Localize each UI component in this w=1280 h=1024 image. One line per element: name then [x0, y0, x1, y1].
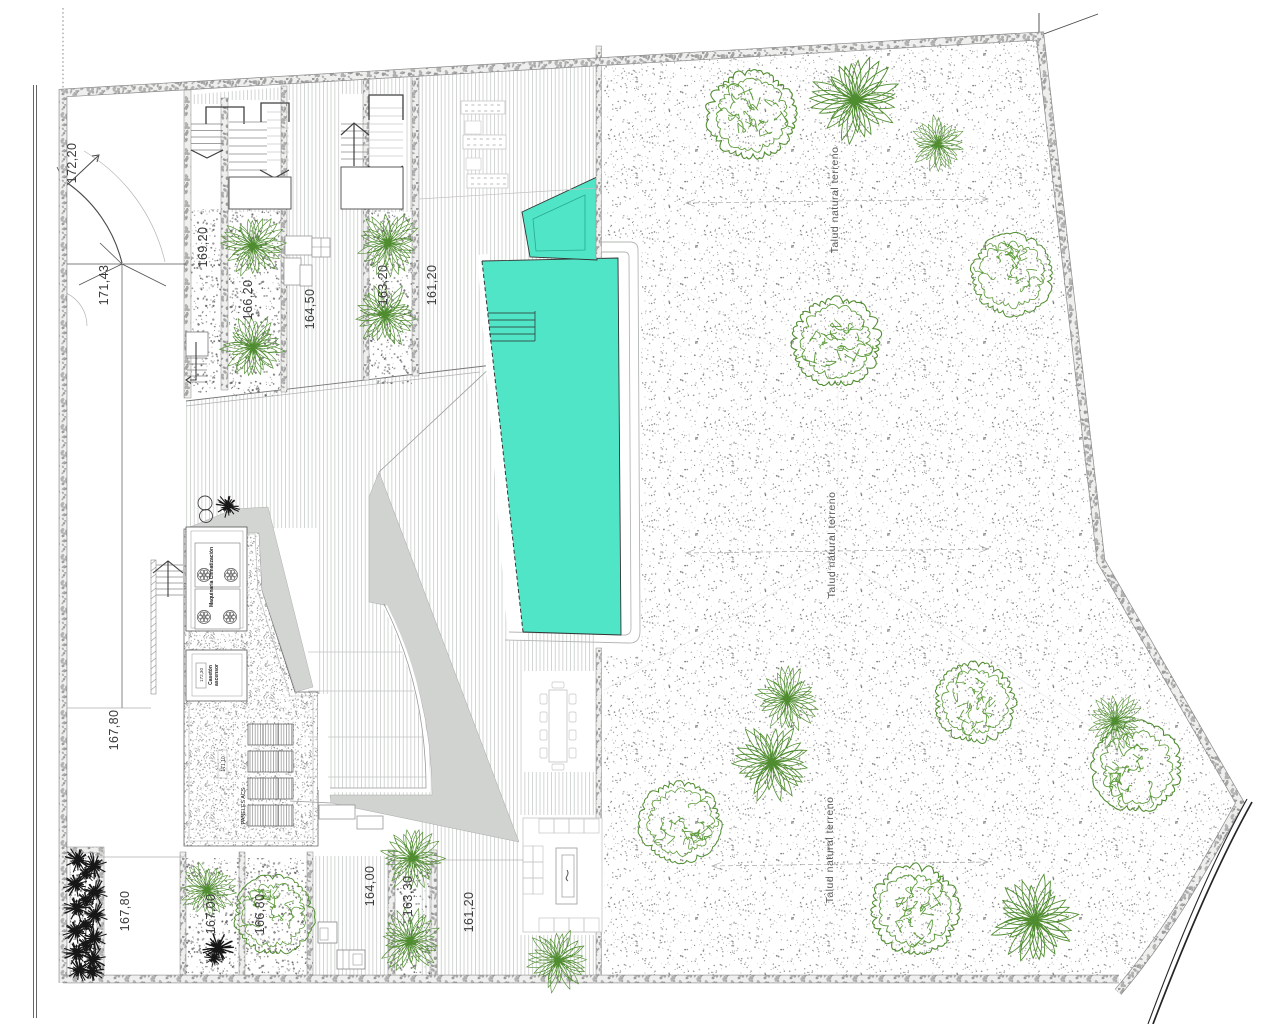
svg-text:172,30: 172,30 [199, 668, 204, 682]
svg-text:Talud natural terreno: Talud natural terreno [826, 492, 838, 599]
svg-text:Talud natural terreno: Talud natural terreno [824, 797, 836, 904]
svg-text:167,00: 167,00 [204, 894, 218, 935]
svg-text:164,50: 164,50 [303, 289, 317, 330]
svg-text:ascensor: ascensor [214, 664, 220, 686]
svg-text:161,20: 161,20 [425, 265, 439, 306]
svg-text:166,80: 166,80 [253, 894, 267, 935]
svg-text:PANELES ACS: PANELES ACS [241, 787, 247, 824]
svg-text:167,80: 167,80 [107, 710, 121, 751]
svg-text:163,30: 163,30 [401, 876, 415, 917]
svg-text:169,20: 169,20 [196, 227, 210, 268]
svg-text:171,10: 171,10 [221, 756, 227, 772]
svg-text:172,20: 172,20 [65, 143, 79, 184]
svg-text:164,00: 164,00 [363, 866, 377, 907]
svg-text:166,20: 166,20 [241, 280, 255, 321]
svg-text:163,20: 163,20 [376, 265, 390, 306]
svg-text:171,43: 171,43 [97, 265, 111, 306]
svg-text:Maquinaria Climatización: Maquinaria Climatización [209, 547, 215, 607]
svg-text:Talud natural terreno: Talud natural terreno [829, 147, 841, 254]
svg-text:161,20: 161,20 [462, 892, 476, 933]
svg-text:167,80: 167,80 [118, 891, 132, 932]
